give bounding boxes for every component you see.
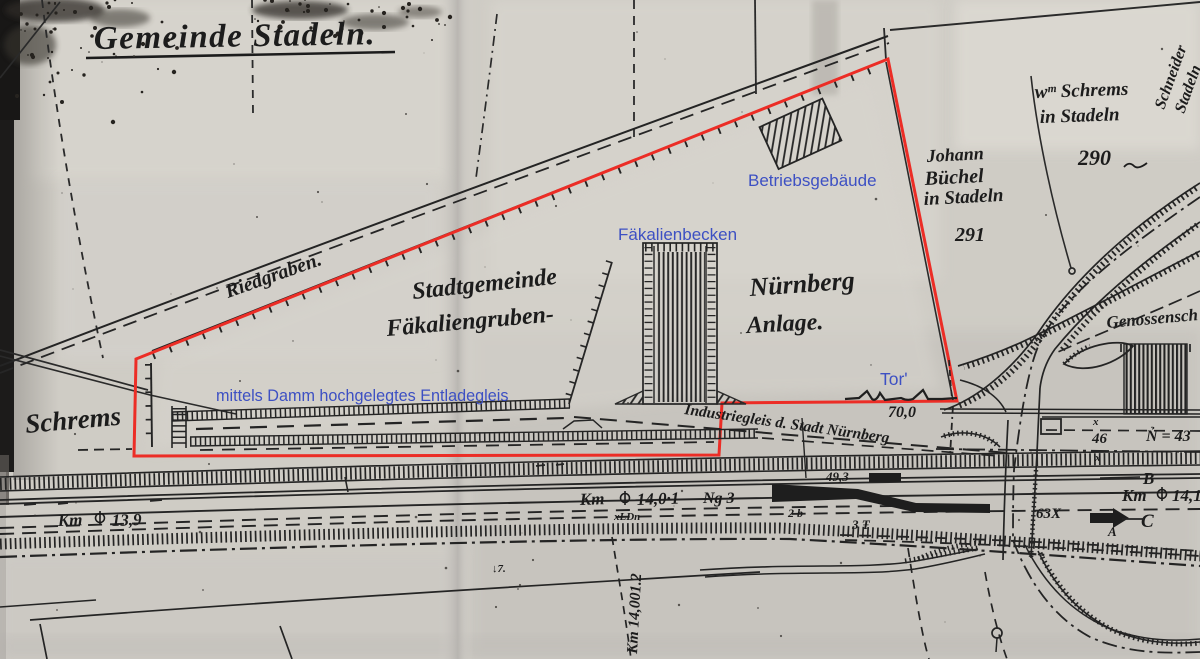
svg-text:C: C	[1141, 511, 1154, 532]
svg-text:xLDn: xLDn	[613, 511, 640, 523]
svg-text:Johann: Johann	[925, 143, 984, 166]
svg-text:2 b: 2 b	[787, 506, 803, 520]
svg-text:14,0∙1: 14,0∙1	[636, 489, 679, 509]
svg-text:14,1: 14,1	[1172, 486, 1200, 505]
svg-text:63X: 63X	[1036, 506, 1062, 522]
svg-text:Km: Km	[1121, 486, 1147, 505]
svg-text:B: B	[1142, 469, 1154, 488]
svg-text:290: 290	[1077, 145, 1111, 170]
svg-text:46: 46	[1091, 431, 1108, 447]
svg-text:49,3: 49,3	[825, 469, 849, 484]
svg-text:13,9: 13,9	[111, 510, 142, 530]
svg-text:Fäkalienbecken: Fäkalienbecken	[618, 225, 737, 244]
svg-text:Ng 3: Ng 3	[702, 490, 735, 507]
svg-text:in Stadeln: in Stadeln	[923, 185, 1004, 210]
svg-text:3 Ŧ: 3 Ŧ	[851, 517, 871, 532]
svg-text:Gemeinde Stadeln.: Gemeinde Stadeln.	[94, 16, 377, 57]
svg-text:Km: Km	[56, 510, 82, 530]
svg-text:x: x	[1094, 452, 1101, 464]
svg-text:291: 291	[954, 224, 985, 246]
svg-text:Anlage.: Anlage.	[744, 309, 824, 339]
svg-text:Torʹ: Torʹ	[880, 369, 908, 389]
svg-text:↓7.: ↓7.	[492, 563, 506, 575]
svg-text:A: A	[1107, 524, 1117, 539]
svg-text:Betriebsgebäude: Betriebsgebäude	[748, 171, 877, 190]
svg-text:Km: Km	[578, 489, 604, 509]
svg-text:in Stadeln: in Stadeln	[1039, 104, 1119, 128]
svg-text:wᵐ Schrems: wᵐ Schrems	[1034, 79, 1128, 103]
svg-text:mittels Damm hochgelegtes Entl: mittels Damm hochgelegtes Entladegleis	[216, 387, 508, 405]
svg-text:N̉ = 43: N̉ = 43	[1145, 426, 1191, 445]
svg-text:70,0: 70,0	[888, 404, 916, 421]
